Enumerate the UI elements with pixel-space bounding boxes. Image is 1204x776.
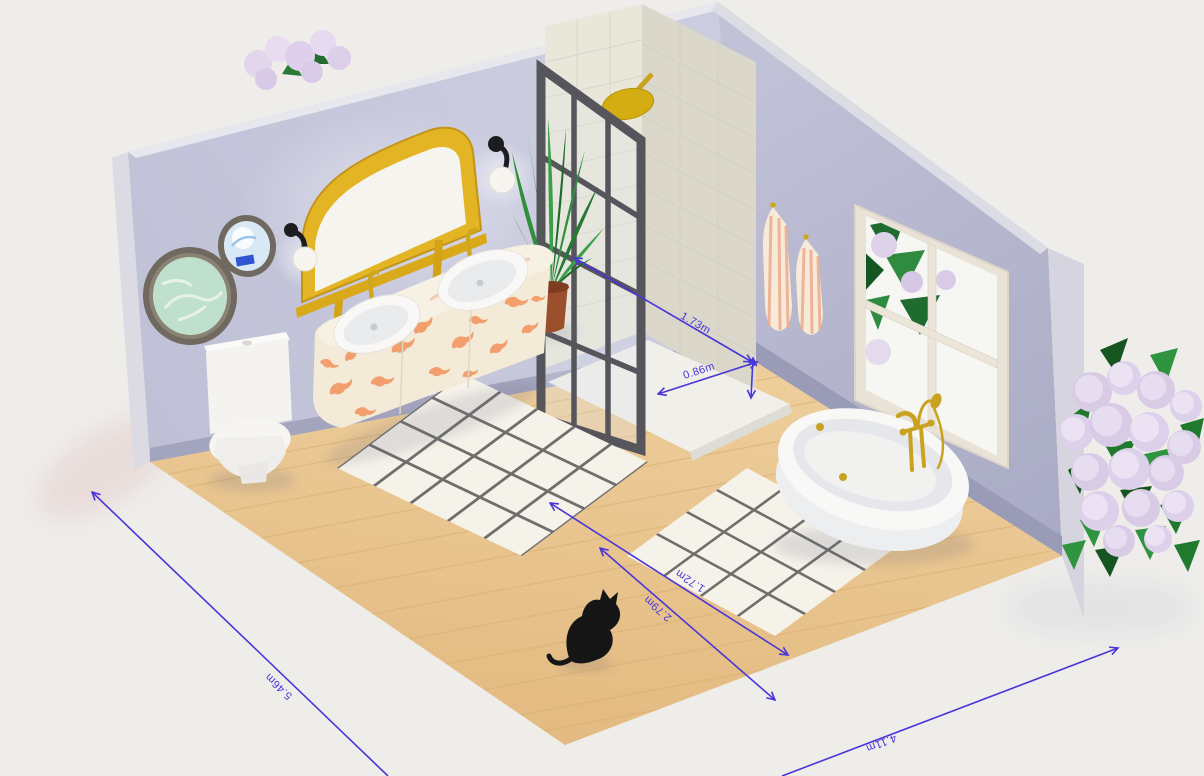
towel-hook (803, 234, 809, 240)
bathroom-3d-scene: 1.73m 0.86m 1.72m 2.79m 5.46m 4.11m (0, 0, 1204, 776)
flush-button[interactable] (242, 341, 252, 346)
tub-drain-knob (839, 473, 847, 481)
sconce-globe (489, 167, 515, 193)
tub-drain-knob (816, 423, 824, 431)
scene-canvas: 1.73m 0.86m 1.72m 2.79m 5.46m 4.11m (0, 0, 1204, 776)
drain (371, 324, 378, 331)
sconce-mount (488, 136, 504, 152)
sconce-mount (284, 223, 298, 237)
sconce-globe (293, 247, 317, 271)
shower-glass-screen[interactable] (541, 68, 641, 450)
wall-shadow-right (1005, 580, 1195, 636)
towel-hook (770, 202, 776, 208)
drain (477, 280, 484, 287)
